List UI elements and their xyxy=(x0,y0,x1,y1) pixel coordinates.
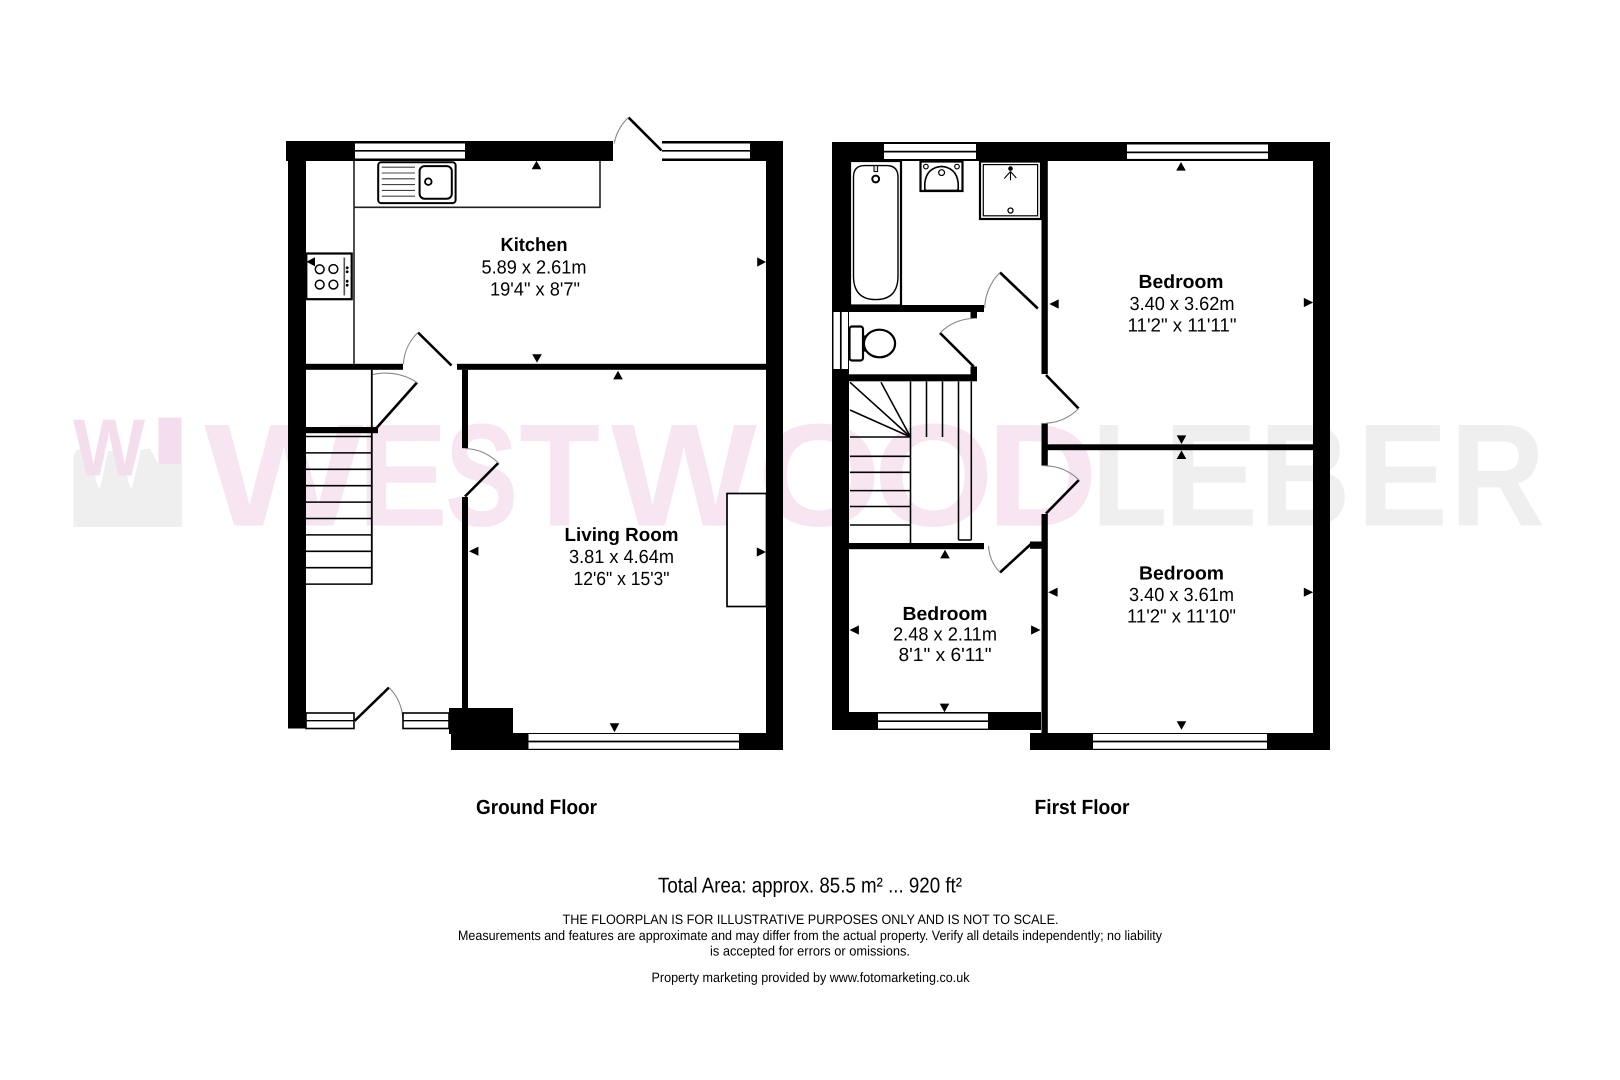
svg-text:Bedroom: Bedroom xyxy=(1139,564,1224,585)
svg-text:5.89 x 2.61m: 5.89 x 2.61m xyxy=(482,258,587,279)
svg-text:O: O xyxy=(874,394,994,557)
svg-text:3.40 x 3.61m: 3.40 x 3.61m xyxy=(1129,585,1234,606)
svg-text:Bedroom: Bedroom xyxy=(903,604,988,625)
svg-text:3.40 x 3.62m: 3.40 x 3.62m xyxy=(1130,294,1235,315)
svg-text:R: R xyxy=(1450,394,1545,557)
svg-text:Measurements and features are: Measurements and features are approximat… xyxy=(458,928,1162,943)
svg-text:E: E xyxy=(1357,394,1448,557)
svg-text:Bedroom: Bedroom xyxy=(1139,272,1224,293)
svg-text:Ground Floor: Ground Floor xyxy=(476,796,597,819)
svg-text:L: L xyxy=(1092,394,1168,557)
svg-text:S: S xyxy=(445,394,518,557)
svg-text:Kitchen: Kitchen xyxy=(501,235,568,256)
svg-text:is accepted for errors or omis: is accepted for errors or omissions. xyxy=(710,944,910,959)
svg-text:19'4" x 8'7": 19'4" x 8'7" xyxy=(490,280,580,301)
svg-text:3.81 x 4.64m: 3.81 x 4.64m xyxy=(569,547,674,568)
svg-text:12'6" x 15'3": 12'6" x 15'3" xyxy=(574,569,670,590)
svg-text:First Floor: First Floor xyxy=(1035,796,1130,819)
svg-text:Total Area: approx. 85.5 m² ..: Total Area: approx. 85.5 m² ... 920 ft² xyxy=(658,874,962,898)
svg-text:W: W xyxy=(204,394,364,557)
svg-text:11'2" x 11'11": 11'2" x 11'11" xyxy=(1128,316,1237,337)
svg-text:11'2" x 11'10": 11'2" x 11'10" xyxy=(1127,607,1236,628)
svg-text:Living Room: Living Room xyxy=(565,525,679,546)
svg-text:2.48 x 2.11m: 2.48 x 2.11m xyxy=(893,625,997,646)
svg-text:W: W xyxy=(73,404,146,494)
svg-text:THE FLOORPLAN IS FOR ILLUSTRAT: THE FLOORPLAN IS FOR ILLUSTRATIVE PURPOS… xyxy=(563,912,1059,927)
svg-text:8'1" x 6'11": 8'1" x 6'11" xyxy=(899,645,992,666)
svg-text:E: E xyxy=(1163,394,1258,557)
svg-text:Property marketing provided by: Property marketing provided by www.fotom… xyxy=(652,970,970,985)
svg-text:B: B xyxy=(1259,394,1350,557)
